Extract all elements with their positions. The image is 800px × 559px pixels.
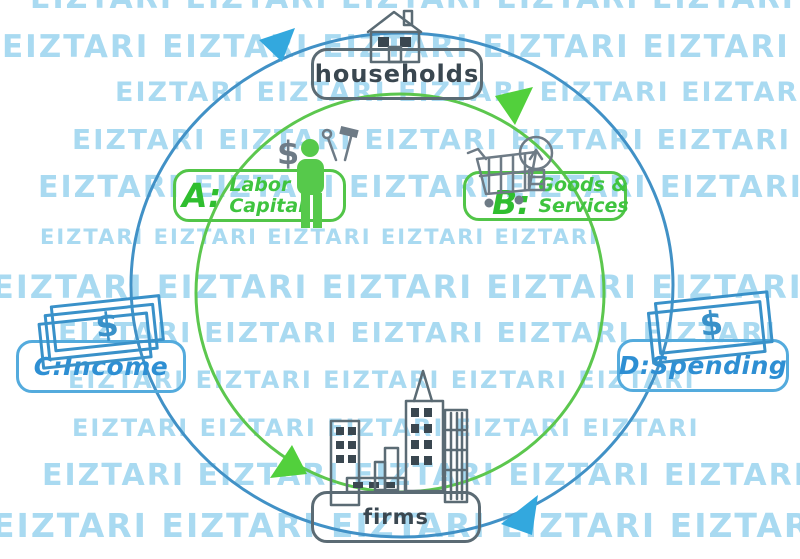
- flow-b-goods-services: B: Goods & Services: [463, 171, 627, 221]
- watermark-text: EIZTARI EIZTARI EIZTARI EIZTARI EIZTARI: [40, 227, 599, 248]
- flow-c-income: C:Income: [16, 340, 186, 393]
- node-households: households: [311, 48, 483, 100]
- flow-a-line1: Labor &: [229, 175, 313, 196]
- flow-d-label: D:Spending: [619, 351, 788, 380]
- watermark-text: EIZTARI EIZTARI EIZTARI EIZTARI EIZTARI: [0, 271, 800, 303]
- flow-d-spending: D:Spending: [617, 339, 789, 392]
- flow-a-labor-capital: A: Labor & Capital: [173, 169, 346, 222]
- flow-b-line1: Goods &: [538, 175, 628, 196]
- watermark-text: EIZTARI EIZTARI EIZTARI EIZTARI EIZTARI: [72, 126, 791, 154]
- flow-a-key: A:: [182, 179, 221, 212]
- flow-b-key: B:: [492, 186, 530, 219]
- watermark-text: EIZTARI EIZTARI EIZTARI EIZTARI EIZTARI: [42, 461, 800, 491]
- circular-flow-diagram: EIZTARI EIZTARI EIZTARI EIZTARI EIZTARIE…: [0, 0, 800, 559]
- households-label: households: [315, 60, 480, 88]
- watermark-text: EIZTARI EIZTARI EIZTARI EIZTARI EIZTARI: [38, 173, 800, 203]
- flow-c-label: C:Income: [34, 352, 168, 381]
- node-firms: firms: [311, 491, 481, 543]
- watermark-text: EIZTARI EIZTARI EIZTARI EIZTARI EIZTARI: [30, 0, 795, 14]
- flow-a-line2: Capital: [229, 196, 313, 217]
- flow-b-line2: Services: [538, 196, 628, 217]
- firms-label: firms: [363, 505, 429, 529]
- watermark-text: EIZTARI EIZTARI EIZTARI EIZTARI EIZTARI: [72, 416, 700, 440]
